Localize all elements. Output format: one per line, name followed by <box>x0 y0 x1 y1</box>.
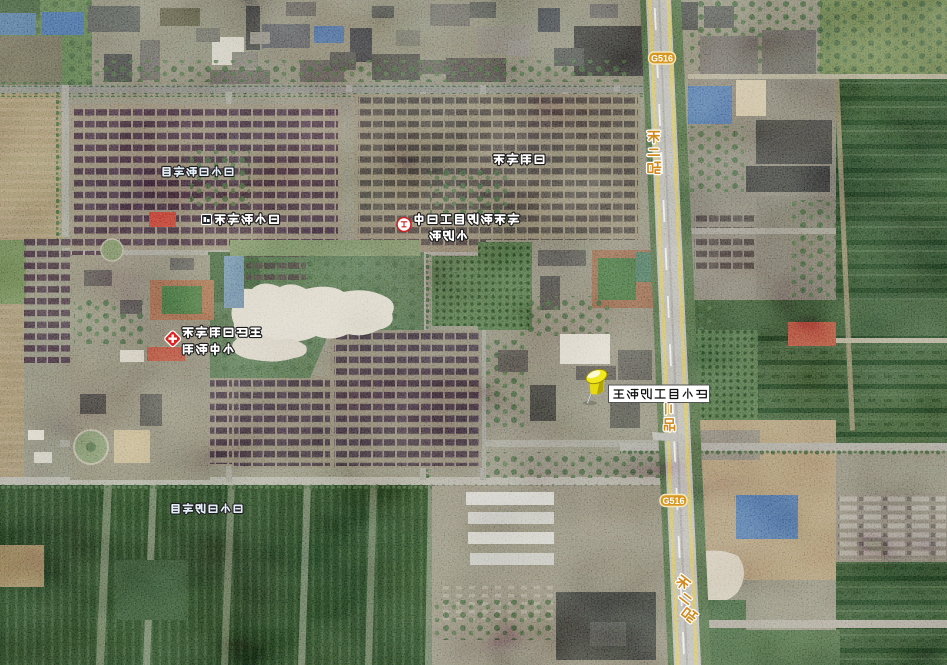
svg-text:G516: G516 <box>662 496 684 506</box>
svg-text:G516: G516 <box>651 54 673 64</box>
